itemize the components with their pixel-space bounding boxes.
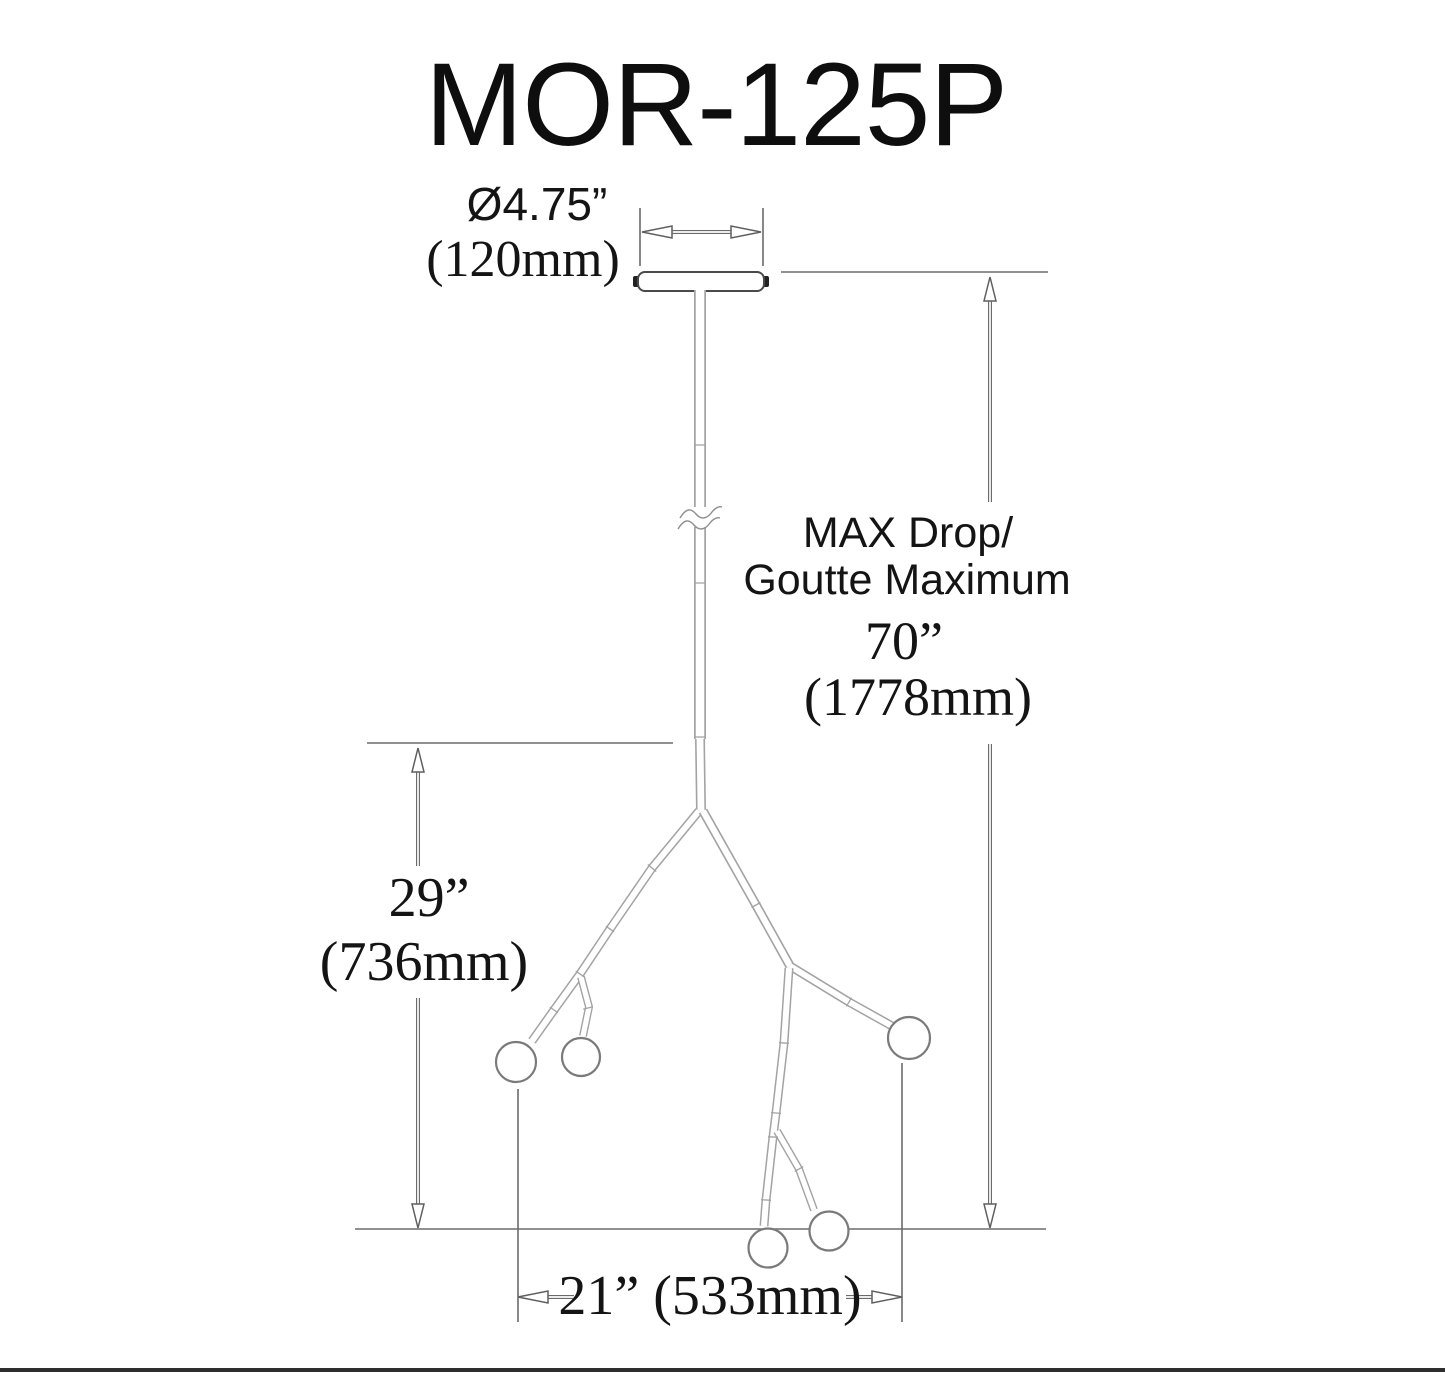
body-width-dimension: 21” (533mm) <box>558 1268 861 1324</box>
bottom-rule <box>0 1368 1445 1372</box>
canopy-diameter-inches: Ø4.75” <box>467 181 608 227</box>
max-drop-mm: (1778mm) <box>804 670 1032 724</box>
max-drop-label-fr: Goutte Maximum <box>743 559 1070 602</box>
max-drop-inches: 70” <box>865 614 943 668</box>
globe-bulb <box>810 1212 849 1251</box>
globe-bulb <box>749 1229 788 1268</box>
body-height-inches: 29” <box>389 870 470 926</box>
pendant-spec-drawing: MOR-125P Ø4.75” (120mm) MAX Drop/ Goutte… <box>0 0 1445 1376</box>
branch-arms <box>532 739 892 1226</box>
body-height-mm: (736mm) <box>320 934 528 990</box>
globe-bulb <box>888 1017 930 1059</box>
globe-bulb <box>562 1038 600 1076</box>
canopy <box>633 272 769 291</box>
diagram-svg <box>0 0 1445 1376</box>
globe-bulb <box>496 1042 536 1082</box>
break-symbol <box>678 507 722 529</box>
globes <box>496 1017 930 1268</box>
canopy-diameter-mm: (120mm) <box>426 234 620 286</box>
max-drop-label-en: MAX Drop/ <box>803 512 1013 555</box>
page-title: MOR-125P <box>425 46 1007 164</box>
